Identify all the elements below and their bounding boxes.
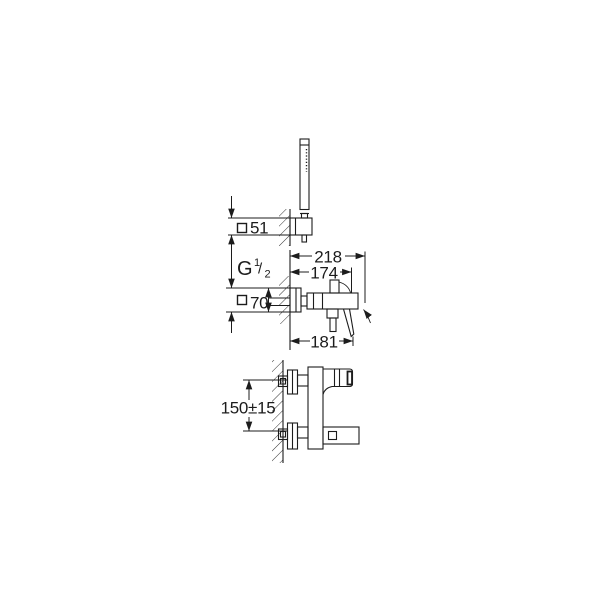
leader-arrow (364, 310, 371, 324)
dim-label-150: 150±15 (221, 399, 276, 418)
dim-label-51: 51 (250, 219, 268, 238)
spout-front (323, 427, 359, 444)
dim-label-174: 174 (310, 264, 337, 283)
thread-g-letter: G (237, 258, 253, 280)
wall-hatching-middle (279, 276, 290, 324)
hand-shower-handle (300, 139, 309, 218)
square-symbol (238, 224, 247, 233)
shower-outlet-connection (327, 309, 338, 332)
dim-label-181: 181 (310, 333, 337, 352)
mixer-front-view (272, 360, 359, 463)
square-symbol (238, 296, 247, 305)
technical-drawing-page: 51 G 1 / 2 (0, 0, 600, 600)
hand-shower-view (279, 139, 312, 246)
holder-drain-pin (302, 235, 307, 242)
mixer-body-front (308, 367, 323, 449)
connection-nipple (301, 296, 307, 306)
thread-denominator: 2 (265, 269, 271, 281)
lever-arm-front (323, 369, 353, 395)
thread-slash: / (258, 261, 263, 278)
spout-square-detail (329, 432, 337, 440)
fitting-dimension-drawing: 51 G 1 / 2 (0, 0, 600, 600)
mixer-body (307, 293, 358, 309)
mixer-handle-blade (344, 309, 354, 337)
lever-end-cap (348, 372, 353, 385)
wall-hatching-top (279, 209, 290, 246)
shower-wall-holder (290, 218, 312, 242)
dim-label-70: 70 (250, 294, 268, 313)
thread-size-label: G 1 / 2 (237, 257, 271, 281)
